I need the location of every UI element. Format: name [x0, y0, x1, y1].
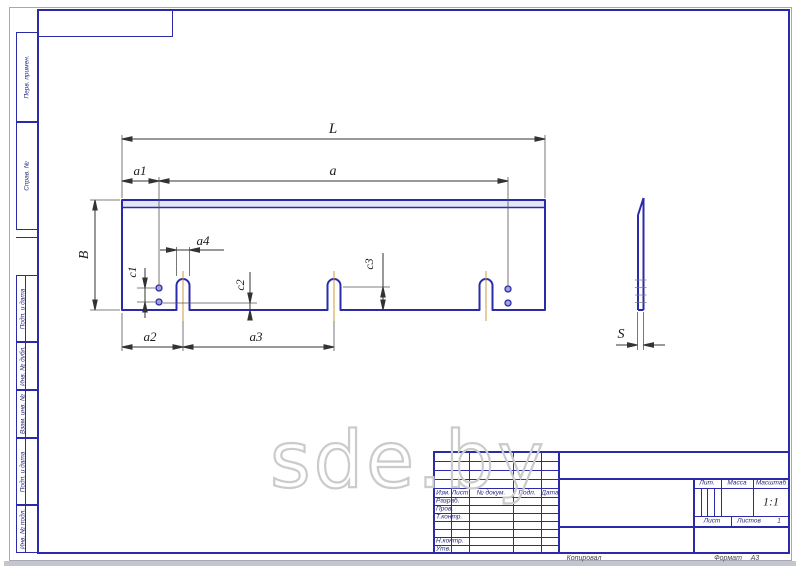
format-value: А3: [751, 555, 760, 562]
divider: [714, 488, 715, 516]
col-header-date: Дата: [541, 490, 558, 497]
col-header-list: Лист: [452, 490, 469, 497]
dim-label-S: S: [618, 327, 625, 342]
dim-label-a3: a3: [250, 329, 264, 344]
kopiroval-caption: Копировал: [567, 555, 602, 562]
bevel-strip: [123, 201, 544, 208]
side-view-ticks: [635, 280, 647, 303]
dimension-a2: a2: [122, 329, 183, 349]
masshtab-label: Масштаб: [756, 480, 786, 487]
scale-value: 1:1: [763, 495, 779, 510]
divider: [434, 479, 559, 480]
divider: [731, 516, 732, 526]
hole: [505, 286, 511, 292]
massa-label: Масса: [727, 480, 746, 487]
divider: [753, 478, 754, 516]
row-label-razrab: Разраб.: [436, 498, 460, 505]
divider: [434, 545, 559, 546]
divider: [434, 521, 559, 522]
dim-label-L: L: [328, 121, 337, 137]
dimension-B: B: [77, 200, 97, 310]
listov-value: 1: [777, 518, 781, 525]
dimension-a3: a3: [183, 329, 334, 349]
divider: [721, 478, 722, 516]
divider: [707, 488, 708, 516]
side-view: [635, 198, 647, 310]
row-label-nkontr: Н.контр.: [436, 538, 464, 545]
dim-label-a: a: [330, 164, 337, 179]
row-label-utv: Утв.: [436, 546, 451, 553]
row-label-prov: Пров.: [436, 506, 453, 513]
hole: [156, 299, 162, 305]
divider: [701, 488, 702, 516]
dimension-L: L: [122, 121, 545, 141]
dim-label-c1: c1: [125, 266, 139, 277]
hole: [505, 300, 511, 306]
title-block-border: [433, 451, 790, 554]
listov-label: Листов: [737, 518, 761, 525]
lit-label: Лит.: [699, 480, 714, 487]
dim-label-a1: a1: [134, 163, 147, 178]
dimension-S: S: [616, 327, 665, 347]
divider: [434, 470, 559, 471]
row-label-tkontr: Т.контр.: [436, 514, 462, 521]
dimension-a1: a1: [122, 163, 159, 183]
dim-label-c3: c3: [362, 258, 376, 269]
dimension-a: a: [159, 164, 508, 183]
divider: [434, 461, 559, 462]
divider: [560, 526, 789, 528]
list-label: Лист: [704, 518, 721, 525]
dim-label-a4: a4: [197, 233, 211, 248]
dim-label-B: B: [77, 250, 92, 259]
format-caption: Формат: [714, 555, 742, 562]
col-header-podp: Подп.: [518, 490, 535, 497]
drawing-sheet: Перв. примен. Справ. № Подп. и дата Инв.…: [0, 0, 800, 566]
col-header-izm: Изм.: [436, 490, 450, 497]
hole: [156, 285, 162, 291]
divider: [434, 529, 559, 530]
divider: [693, 478, 695, 553]
divider: [560, 478, 789, 480]
col-header-doc: № докум.: [477, 490, 506, 497]
dim-label-c2: c2: [233, 279, 247, 290]
dim-label-a2: a2: [144, 329, 158, 344]
